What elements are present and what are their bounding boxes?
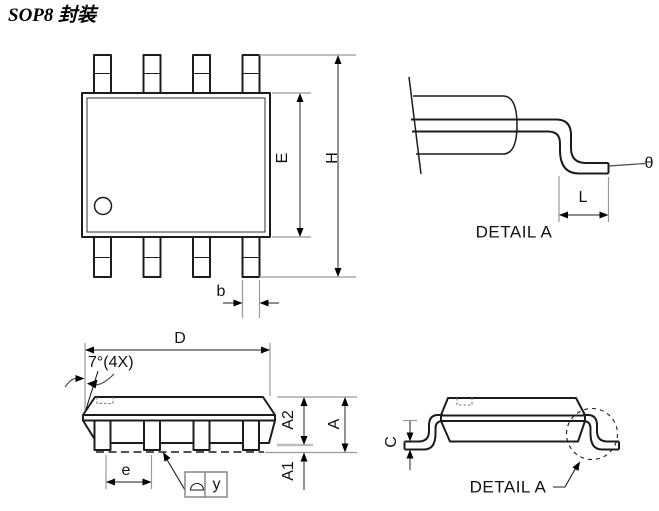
- dim-label-D: D: [174, 331, 186, 347]
- side-view-lineart: [403, 398, 619, 487]
- draft-angle-label: 7°(4X): [88, 355, 134, 371]
- pin1-indicator: [95, 198, 112, 215]
- dim-label-L: L: [579, 190, 588, 206]
- dim-label-A: A: [327, 419, 343, 430]
- body-cut-line: [409, 77, 421, 174]
- datum-flag-label: y: [213, 477, 221, 493]
- dim-label-b: b: [217, 284, 226, 300]
- package-body-side-view: [441, 398, 585, 442]
- body-outline: [413, 96, 517, 154]
- dim-label-A1: A1: [281, 461, 297, 481]
- detail-a-leader: [553, 462, 580, 488]
- dim-label-e: e: [122, 463, 131, 479]
- package-body-top-view: [82, 93, 270, 237]
- package-drawing-canvas: SOP8 封装 E H b θ L DETAIL A D 7°(4X) A2 A…: [0, 0, 659, 511]
- dim-label-E: E: [275, 153, 291, 164]
- page-title: SOP8 封装: [8, 6, 96, 25]
- dim-A-group: [265, 397, 357, 490]
- dim-label-H: H: [325, 152, 341, 164]
- lead-detail-lineart: [409, 77, 645, 222]
- lead-inner-surface: [412, 132, 609, 174]
- dim-E: [272, 93, 311, 237]
- dim-H: [259, 55, 356, 277]
- dim-label-theta: θ: [645, 156, 654, 172]
- detail-a-caption-top: DETAIL A: [476, 224, 553, 241]
- dim-label-C: C: [384, 436, 400, 448]
- theta-reference-line: [609, 164, 645, 167]
- dim-label-A2: A2: [281, 410, 297, 430]
- lead-outer-surface: [411, 120, 609, 164]
- dim-b: [223, 280, 279, 318]
- top-view-lineart: [82, 55, 356, 318]
- detail-a-caption-bottom: DETAIL A: [470, 479, 547, 496]
- drawing-lineart: [0, 0, 659, 511]
